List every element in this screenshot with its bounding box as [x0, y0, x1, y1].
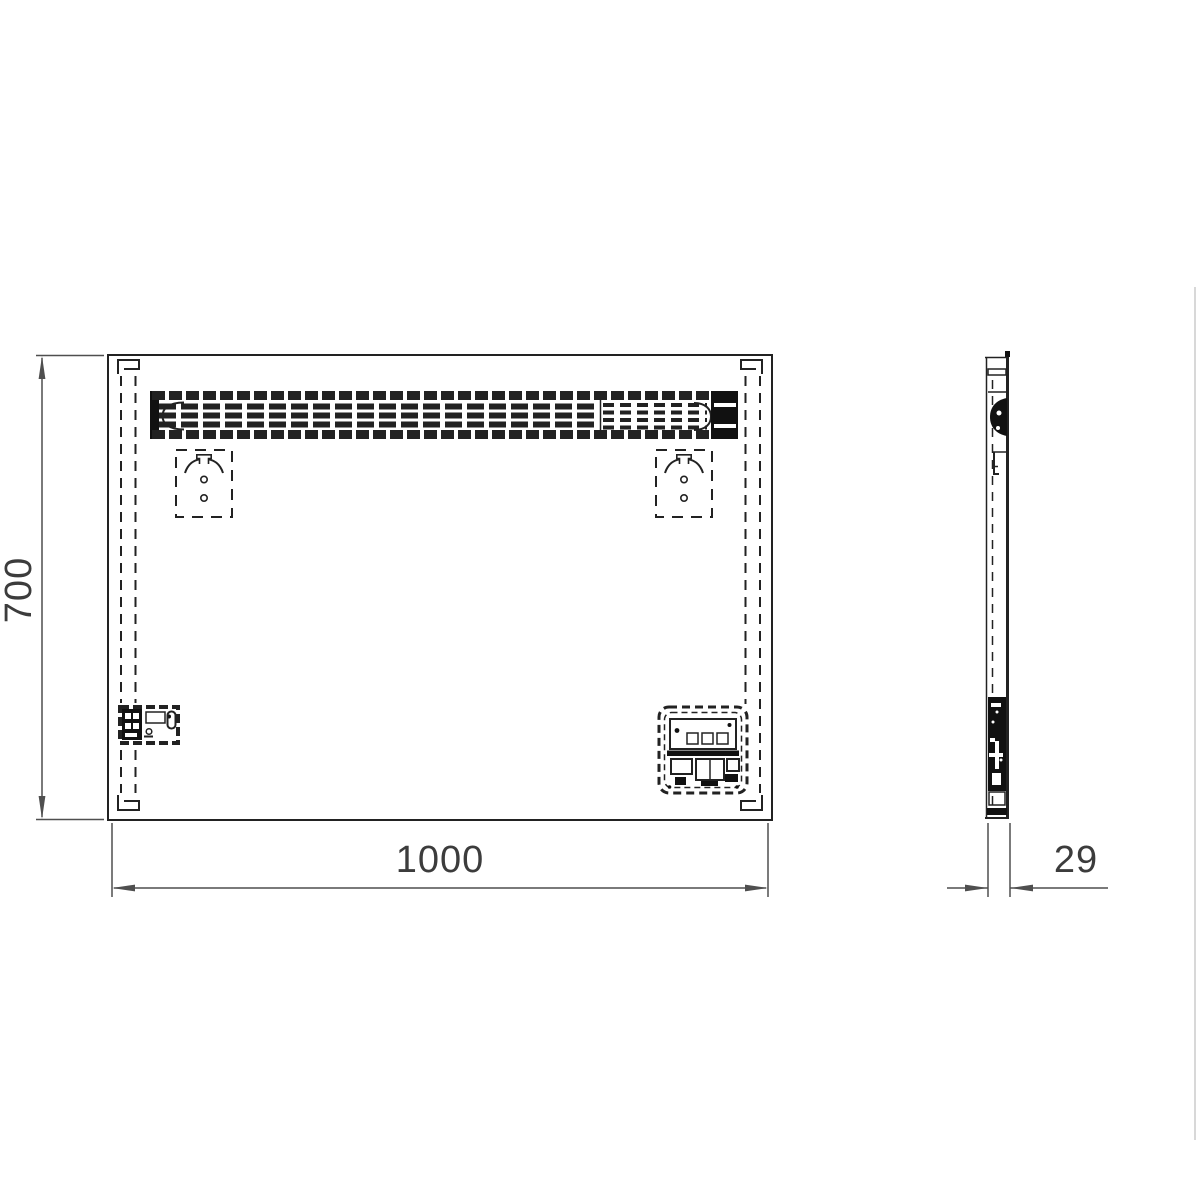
strip-clip-top-left-icon: [118, 360, 139, 374]
dimension-width-label: 1000: [396, 839, 485, 881]
switch-box-icon: [116, 703, 182, 747]
dimension-width: 1000: [112, 823, 768, 897]
side-junction-box-icon: [988, 697, 1006, 791]
dimension-depth-label: 29: [1054, 839, 1098, 881]
technical-drawing-canvas: 700 1000 29: [0, 0, 1200, 1200]
hanger-bracket-right-icon: [656, 450, 712, 517]
side-bottom-cap-icon: [985, 792, 1009, 818]
side-top-tick-icon: [1005, 351, 1010, 357]
side-top-cap-icon: [988, 369, 1006, 375]
arrowhead-right-icon: [745, 885, 768, 892]
arrowhead-left-icon: [112, 885, 135, 892]
strip-clip-bottom-right-icon: [741, 795, 762, 810]
technical-drawing-page: 700 1000 29: [0, 0, 1200, 1200]
side-view: [985, 351, 1010, 818]
arrowhead-left-icon: [1010, 885, 1033, 892]
arrowhead-up-icon: [39, 356, 46, 379]
arrowhead-down-icon: [39, 796, 46, 819]
arrowhead-right-icon: [965, 885, 988, 892]
dimension-height-label: 700: [0, 557, 40, 623]
hanger-bracket-left-icon: [176, 450, 232, 517]
front-view: [108, 355, 772, 820]
dimension-depth: 29: [947, 823, 1108, 897]
side-bracket-icon: [992, 452, 1006, 474]
dimension-height: 700: [0, 356, 104, 820]
junction-box-icon: [656, 704, 750, 796]
strip-clip-top-right-icon: [741, 360, 762, 374]
strip-clip-bottom-left-icon: [118, 795, 139, 810]
light-bar-icon: [150, 391, 738, 439]
